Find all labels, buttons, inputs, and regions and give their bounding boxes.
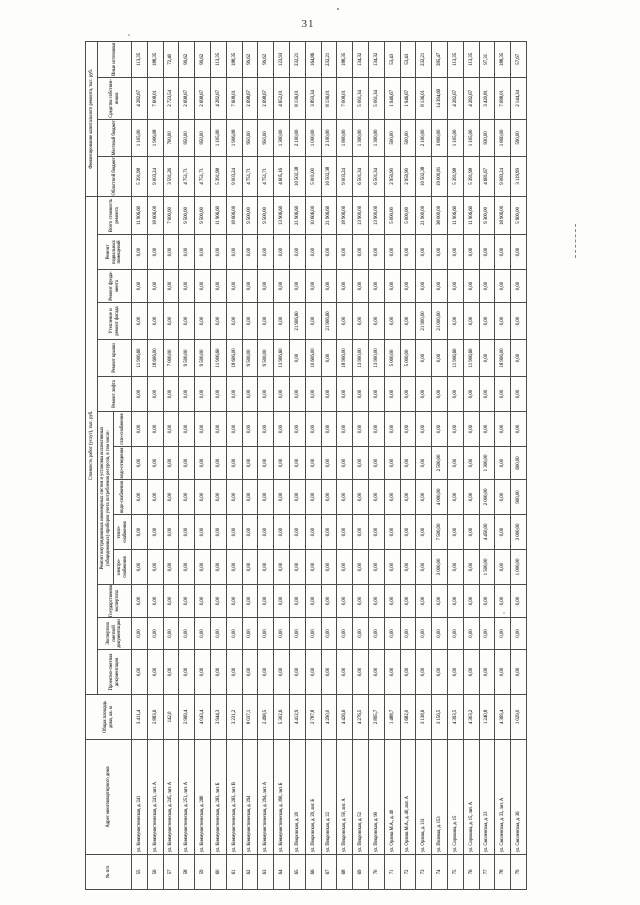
value-cell: 0,00 bbox=[242, 550, 258, 585]
value-cell: 0,00 bbox=[337, 480, 353, 515]
value-cell: 19 000,81 bbox=[432, 156, 448, 196]
rotated-table-area: № п/п Адрес многоквартирного дома Общая … bbox=[85, 40, 500, 890]
value-cell: 1 029,0 bbox=[511, 695, 527, 740]
value-cell: 0,00 bbox=[400, 515, 416, 550]
value-cell: 18 906,00 bbox=[337, 196, 353, 234]
value-cell: 0,00 bbox=[416, 235, 432, 270]
value-cell: 0,00 bbox=[210, 303, 226, 340]
value-cell: 0,00 bbox=[447, 377, 463, 412]
value-cell: 18 606,00 bbox=[226, 340, 242, 377]
value-cell: 0,00 bbox=[432, 270, 448, 303]
value-cell: 8 037,1 bbox=[242, 695, 258, 740]
value-cell: 0,00 bbox=[305, 377, 321, 412]
address-cell: ул. Покровская, д. 20, лит. Б bbox=[305, 740, 321, 855]
value-cell: 0,00 bbox=[447, 303, 463, 340]
value-cell: 4 369,4 bbox=[495, 695, 511, 740]
value-cell: 0,00 bbox=[305, 550, 321, 585]
col-header-state-expertise: Государственная экспертиза bbox=[98, 585, 132, 618]
value-cell: 1 240,8 bbox=[479, 695, 495, 740]
value-cell: 0,00 bbox=[447, 270, 463, 303]
value-cell: 0,00 bbox=[337, 515, 353, 550]
value-cell: 0,00 bbox=[305, 650, 321, 695]
value-cell: 0,00 bbox=[463, 377, 479, 412]
table-row: 79ул. Смоленская, д. 361 029,00,000,000,… bbox=[511, 41, 527, 889]
value-cell: 10 502,38 bbox=[321, 156, 337, 196]
value-cell: 134,32 bbox=[368, 41, 384, 77]
value-cell: 0,00 bbox=[416, 412, 432, 447]
value-cell: 21 000,00 bbox=[432, 303, 448, 340]
value-cell: 0,00 bbox=[289, 340, 305, 377]
value-cell: 1 300,00 bbox=[274, 119, 290, 156]
col-header-address: Адрес многоквартирного дома bbox=[86, 740, 132, 855]
value-cell: 0,00 bbox=[511, 650, 527, 695]
value-cell: 0,00 bbox=[147, 270, 163, 303]
value-cell: 0,00 bbox=[368, 235, 384, 270]
value-cell: 0,00 bbox=[258, 270, 274, 303]
scan-speck bbox=[337, 8, 339, 10]
value-cell: 0,00 bbox=[226, 447, 242, 480]
value-cell: 0,00 bbox=[226, 618, 242, 650]
value-cell: 1 300,00 bbox=[353, 119, 369, 156]
value-cell: 0,00 bbox=[195, 377, 211, 412]
col-header-num: № п/п bbox=[86, 855, 132, 890]
value-cell: 0,00 bbox=[242, 412, 258, 447]
value-cell: 3 893,34 bbox=[305, 77, 321, 119]
col-header-area: Общая площадь дома, кв. м bbox=[86, 695, 132, 740]
value-cell: 0,00 bbox=[463, 412, 479, 447]
value-cell: 11 906,60 bbox=[447, 196, 463, 234]
value-cell: 0,00 bbox=[289, 235, 305, 270]
value-cell: 0,00 bbox=[163, 235, 179, 270]
value-cell: 0,00 bbox=[321, 270, 337, 303]
value-cell: 0,00 bbox=[195, 235, 211, 270]
value-cell: 5 000,00 bbox=[400, 340, 416, 377]
col-header-other-sources: Иные источники bbox=[98, 41, 132, 77]
value-cell: 3 138,6 bbox=[416, 695, 432, 740]
address-cell: ул. Полевая, д. 153 bbox=[432, 740, 448, 855]
row-number-cell: 72 bbox=[400, 855, 416, 890]
address-cell: ул. Коммунистическая, д. 294 bbox=[242, 740, 258, 855]
value-cell: 0,00 bbox=[163, 303, 179, 340]
table-row: 67ул. Покровская, д. 224 290,00,000,000,… bbox=[321, 41, 337, 889]
value-cell: 1 488,7 bbox=[384, 695, 400, 740]
repair-table: № п/п Адрес многоквартирного дома Общая … bbox=[85, 41, 527, 890]
value-cell: 0,00 bbox=[242, 650, 258, 695]
value-cell: 0,00 bbox=[305, 235, 321, 270]
address-cell: ул. Коммунистическая, д. 241 bbox=[132, 740, 148, 855]
value-cell: 1 946,67 bbox=[384, 77, 400, 119]
value-cell: 0,00 bbox=[353, 618, 369, 650]
value-cell: 0,00 bbox=[368, 412, 384, 447]
value-cell: 0,00 bbox=[447, 480, 463, 515]
row-number-cell: 55 bbox=[132, 855, 148, 890]
value-cell: 11 906,60 bbox=[210, 196, 226, 234]
value-cell: 0,00 bbox=[210, 515, 226, 550]
value-cell: 0,00 bbox=[416, 480, 432, 515]
value-cell: 1 906,08 bbox=[226, 119, 242, 156]
value-cell: 0,00 bbox=[258, 447, 274, 480]
value-cell: 0,00 bbox=[226, 412, 242, 447]
table-row: 66ул. Покровская, д. 20, лит. Б2 787,80,… bbox=[305, 41, 321, 889]
value-cell: 0,00 bbox=[226, 303, 242, 340]
value-cell: 0,00 bbox=[337, 270, 353, 303]
row-number-cell: 57 bbox=[163, 855, 179, 890]
col-header-facade: Утепление и ремонт фасада bbox=[98, 303, 132, 340]
value-cell: 0,00 bbox=[226, 650, 242, 695]
value-cell: 1 800,00 bbox=[337, 119, 353, 156]
address-cell: ул. Коммунистическая, д. 251, лит. А bbox=[179, 740, 195, 855]
value-cell: 0,00 bbox=[479, 270, 495, 303]
value-cell: 0,00 bbox=[274, 412, 290, 447]
value-cell: 0,00 bbox=[337, 550, 353, 585]
value-cell: 0,00 bbox=[353, 585, 369, 618]
value-cell: 0,00 bbox=[258, 550, 274, 585]
value-cell: 0,00 bbox=[132, 585, 148, 618]
value-cell: 2 723,54 bbox=[163, 77, 179, 119]
value-cell: 5 900,00 bbox=[511, 196, 527, 234]
value-cell: 72,40 bbox=[163, 41, 179, 77]
value-cell: 0,00 bbox=[384, 303, 400, 340]
value-cell: 0,00 bbox=[321, 447, 337, 480]
value-cell: 0,00 bbox=[226, 515, 242, 550]
value-cell: 0,00 bbox=[400, 235, 416, 270]
value-cell: 0,00 bbox=[447, 447, 463, 480]
value-cell: 950,00 bbox=[195, 119, 211, 156]
value-cell: 0,00 bbox=[463, 270, 479, 303]
value-cell: 0,00 bbox=[321, 412, 337, 447]
value-cell: 3 119,99 bbox=[511, 156, 527, 196]
value-cell: 0,00 bbox=[242, 515, 258, 550]
value-cell: 0,00 bbox=[163, 412, 179, 447]
value-cell: 0,00 bbox=[368, 270, 384, 303]
value-cell: 0,00 bbox=[195, 585, 211, 618]
value-cell: 0,00 bbox=[353, 515, 369, 550]
value-cell: 0,00 bbox=[258, 235, 274, 270]
value-cell: 232,21 bbox=[289, 41, 305, 77]
value-cell: 0,00 bbox=[447, 412, 463, 447]
value-cell: 0,00 bbox=[353, 480, 369, 515]
value-cell: 0,00 bbox=[258, 650, 274, 695]
value-cell: 0,00 bbox=[400, 618, 416, 650]
value-cell: 2 100,00 bbox=[321, 119, 337, 156]
value-cell: 1 000,00 bbox=[511, 550, 527, 585]
value-cell: 0,00 bbox=[132, 235, 148, 270]
value-cell: 0,00 bbox=[368, 618, 384, 650]
value-cell: 18 606,00 bbox=[226, 196, 242, 234]
value-cell: 53,43 bbox=[400, 41, 416, 77]
address-cell: ул. Орлова, д. 131 bbox=[416, 740, 432, 855]
value-cell: 0,00 bbox=[511, 340, 527, 377]
value-cell: 0,00 bbox=[368, 480, 384, 515]
value-cell: 10 606,00 bbox=[305, 340, 321, 377]
value-cell: 0,00 bbox=[368, 303, 384, 340]
value-cell: 0,00 bbox=[463, 550, 479, 585]
value-cell: 0,00 bbox=[242, 235, 258, 270]
value-cell: 7 088,01 bbox=[495, 77, 511, 119]
col-header-total: Всего стоимость ремонта bbox=[98, 196, 132, 234]
value-cell: 9 083,24 bbox=[495, 156, 511, 196]
value-cell: 7 000,00 bbox=[163, 196, 179, 234]
value-cell: 0,00 bbox=[384, 550, 400, 585]
value-cell: 0,00 bbox=[384, 377, 400, 412]
value-cell: 0,00 bbox=[305, 412, 321, 447]
value-cell: 930,00 bbox=[479, 119, 495, 156]
table-row: 61ул. Коммунистическая, д. 283, лит. В3 … bbox=[226, 41, 242, 889]
value-cell: 2 144,34 bbox=[511, 77, 527, 119]
value-cell: 0,00 bbox=[226, 550, 242, 585]
value-cell: 4 412,9 bbox=[289, 695, 305, 740]
value-cell: 5 000,00 bbox=[384, 196, 400, 234]
value-cell: 0,00 bbox=[321, 550, 337, 585]
value-cell: 7 608,01 bbox=[226, 77, 242, 119]
value-cell: 13 906,60 bbox=[274, 196, 290, 234]
value-cell: 4 290,0 bbox=[321, 695, 337, 740]
row-number-cell: 66 bbox=[305, 855, 321, 890]
address-cell: ул. Орлова М.А., д. 40 bbox=[384, 740, 400, 855]
table-row: 74ул. Полевая, д. 1533 156,50,000,000,00… bbox=[432, 41, 448, 889]
value-cell: 0,00 bbox=[511, 270, 527, 303]
landscape-table-wrapper: № п/п Адрес многоквартирного дома Общая … bbox=[85, 40, 500, 890]
value-cell: 2 698,67 bbox=[195, 77, 211, 119]
value-cell: 9 500,00 bbox=[258, 196, 274, 234]
value-cell: 0,00 bbox=[479, 377, 495, 412]
value-cell: 0,00 bbox=[179, 618, 195, 650]
table-row: 68ул. Покровская, д. 50, лит. А4 426,60,… bbox=[337, 41, 353, 889]
value-cell: 0,00 bbox=[495, 447, 511, 480]
table-row: 62ул. Коммунистическая, д. 2948 037,10,0… bbox=[242, 41, 258, 889]
col-header-electricity: электро-снабжения bbox=[114, 550, 132, 585]
value-cell: 1 105,00 bbox=[132, 119, 148, 156]
value-cell: 0,00 bbox=[132, 515, 148, 550]
value-cell: 0,00 bbox=[479, 412, 495, 447]
value-cell: 11 906,60 bbox=[210, 340, 226, 377]
value-cell: 99,62 bbox=[258, 41, 274, 77]
value-cell: 0,00 bbox=[258, 480, 274, 515]
address-cell: ул. Коммунистическая, д. 283, лит. Б bbox=[210, 740, 226, 855]
address-cell: ул. Коммунистическая, д. 241, лит. А bbox=[147, 740, 163, 855]
address-cell: ул. Смоленская, д. 36 bbox=[511, 740, 527, 855]
value-cell: 21 906,60 bbox=[321, 303, 337, 340]
value-cell: 188,35 bbox=[337, 41, 353, 77]
value-cell: 7 000,00 bbox=[163, 340, 179, 377]
col-header-elevator: Ремонт лифта bbox=[98, 377, 132, 412]
value-cell: 0,00 bbox=[384, 447, 400, 480]
address-cell: ул. Покровская, д. 20 bbox=[289, 740, 305, 855]
value-cell: 5 061,34 bbox=[353, 77, 369, 119]
value-cell: 0,00 bbox=[195, 515, 211, 550]
row-number-cell: 71 bbox=[384, 855, 400, 890]
value-cell: 0,00 bbox=[226, 480, 242, 515]
value-cell: 0,00 bbox=[258, 303, 274, 340]
value-cell: 188,35 bbox=[226, 41, 242, 77]
value-cell: 5 391,98 bbox=[132, 156, 148, 196]
scan-artifact-dash bbox=[575, 224, 576, 258]
value-cell: 0,00 bbox=[289, 377, 305, 412]
value-cell: 97,31 bbox=[479, 41, 495, 77]
value-cell: 3 000,00 bbox=[511, 515, 527, 550]
value-cell: 2 950,90 bbox=[400, 156, 416, 196]
value-cell: 0,00 bbox=[274, 270, 290, 303]
value-cell: 0,00 bbox=[463, 585, 479, 618]
col-header-gas: газо-снабжения bbox=[114, 412, 132, 447]
value-cell: 0,00 bbox=[132, 480, 148, 515]
value-cell: 18 606,00 bbox=[147, 340, 163, 377]
value-cell: 0,00 bbox=[258, 515, 274, 550]
value-cell: 0,00 bbox=[400, 650, 416, 695]
value-cell: 13 900,00 bbox=[353, 196, 369, 234]
value-cell: 500,00 bbox=[384, 119, 400, 156]
value-cell: 2 498,5 bbox=[258, 695, 274, 740]
value-cell: 0,00 bbox=[210, 585, 226, 618]
value-cell: 1 105,00 bbox=[463, 119, 479, 156]
value-cell: 0,00 bbox=[432, 618, 448, 650]
value-cell: 950,00 bbox=[242, 119, 258, 156]
value-cell: 0,00 bbox=[179, 377, 195, 412]
value-cell: 0,00 bbox=[463, 650, 479, 695]
value-cell: 0,00 bbox=[447, 550, 463, 585]
value-cell: 0,00 bbox=[132, 270, 148, 303]
value-cell: 10 502,38 bbox=[416, 156, 432, 196]
value-cell: 0,00 bbox=[479, 650, 495, 695]
value-cell: 0,00 bbox=[274, 303, 290, 340]
value-cell: 0,00 bbox=[179, 480, 195, 515]
table-header: № п/п Адрес многоквартирного дома Общая … bbox=[86, 41, 132, 889]
value-cell: 0,00 bbox=[226, 585, 242, 618]
value-cell: 0,00 bbox=[258, 377, 274, 412]
value-cell: 950,00 bbox=[258, 119, 274, 156]
value-cell: 0,00 bbox=[163, 447, 179, 480]
row-number-cell: 67 bbox=[321, 855, 337, 890]
value-cell: 6 501,34 bbox=[368, 156, 384, 196]
value-cell: 0,00 bbox=[447, 650, 463, 695]
value-cell: 9 500,00 bbox=[242, 196, 258, 234]
value-cell: 0,00 bbox=[195, 480, 211, 515]
value-cell: 11 906,60 bbox=[132, 196, 148, 234]
value-cell: 2 698,67 bbox=[258, 77, 274, 119]
value-cell: 0,00 bbox=[179, 303, 195, 340]
value-cell: 0,00 bbox=[274, 585, 290, 618]
address-cell: ул. Покровская, д. 22 bbox=[321, 740, 337, 855]
value-cell: 0,00 bbox=[321, 377, 337, 412]
value-cell: 500,00 bbox=[400, 119, 416, 156]
value-cell: 3 944,3 bbox=[210, 695, 226, 740]
row-number-cell: 73 bbox=[416, 855, 432, 890]
value-cell: 5 391,98 bbox=[463, 156, 479, 196]
table-row: 77ул. Смоленская, д. 231 240,80,000,000,… bbox=[479, 41, 495, 889]
value-cell: 0,00 bbox=[195, 650, 211, 695]
value-cell: 0,00 bbox=[147, 585, 163, 618]
address-cell: ул. Смоленская, д. 32, лит. А bbox=[495, 740, 511, 855]
value-cell: 0,00 bbox=[384, 235, 400, 270]
value-cell: 5 302,6 bbox=[274, 695, 290, 740]
value-cell: 0,00 bbox=[195, 447, 211, 480]
page-number: 31 bbox=[288, 18, 328, 30]
address-cell: ул. Коммунистическая, д. 390, лит. Б bbox=[274, 740, 290, 855]
value-cell: 0,00 bbox=[226, 270, 242, 303]
value-cell: 188,35 bbox=[495, 41, 511, 77]
value-cell: 0,00 bbox=[495, 650, 511, 695]
value-cell: 0,00 bbox=[432, 650, 448, 695]
value-cell: 0,00 bbox=[321, 650, 337, 695]
row-number-cell: 78 bbox=[495, 855, 511, 890]
value-cell: 0,00 bbox=[289, 270, 305, 303]
value-cell: 0,00 bbox=[368, 650, 384, 695]
value-cell: 0,00 bbox=[274, 515, 290, 550]
scan-speck bbox=[128, 34, 130, 36]
table-row: 63ул. Коммунистическая, д. 294, лит. А2 … bbox=[258, 41, 274, 889]
value-cell: 0,00 bbox=[147, 618, 163, 650]
value-cell: 0,00 bbox=[179, 585, 195, 618]
value-cell: 13 900,00 bbox=[368, 340, 384, 377]
value-cell: 0,00 bbox=[416, 550, 432, 585]
value-cell: 0,00 bbox=[495, 618, 511, 650]
row-number-cell: 68 bbox=[337, 855, 353, 890]
value-cell: 0,00 bbox=[179, 550, 195, 585]
value-cell: 13 900,00 bbox=[353, 340, 369, 377]
value-cell: 0,00 bbox=[353, 412, 369, 447]
value-cell: 0,00 bbox=[274, 447, 290, 480]
value-cell: 0,00 bbox=[400, 303, 416, 340]
value-cell: 21 900,00 bbox=[416, 196, 432, 234]
value-cell: 2 100,00 bbox=[289, 119, 305, 156]
col-header-roof: Ремонт крыши bbox=[98, 340, 132, 377]
value-cell: 0,00 bbox=[163, 270, 179, 303]
value-cell: 0,00 bbox=[305, 480, 321, 515]
value-cell: 0,00 bbox=[132, 447, 148, 480]
value-cell: 0,00 bbox=[495, 270, 511, 303]
value-cell: 0,00 bbox=[353, 235, 369, 270]
value-cell: 0,00 bbox=[353, 303, 369, 340]
value-cell: 0,00 bbox=[147, 515, 163, 550]
value-cell: 188,35 bbox=[147, 41, 163, 77]
value-cell: 0,00 bbox=[274, 550, 290, 585]
value-cell: 0,00 bbox=[353, 377, 369, 412]
value-cell: 232,21 bbox=[321, 41, 337, 77]
value-cell: 0,00 bbox=[321, 618, 337, 650]
value-cell: 0,00 bbox=[147, 650, 163, 695]
value-cell: 0,00 bbox=[495, 480, 511, 515]
value-cell: 0,00 bbox=[179, 270, 195, 303]
value-cell: 1 300,00 bbox=[479, 447, 495, 480]
value-cell: 0,00 bbox=[432, 585, 448, 618]
value-cell: 0,00 bbox=[163, 618, 179, 650]
value-cell: 0,00 bbox=[479, 340, 495, 377]
value-cell: 395,47 bbox=[432, 41, 448, 77]
value-cell: 0,00 bbox=[353, 550, 369, 585]
value-cell: 4 282,67 bbox=[132, 77, 148, 119]
row-number-cell: 69 bbox=[353, 855, 369, 890]
value-cell: 0,00 bbox=[384, 650, 400, 695]
value-cell: 0,00 bbox=[289, 412, 305, 447]
value-cell: 0,00 bbox=[447, 618, 463, 650]
value-cell: 0,00 bbox=[337, 235, 353, 270]
value-cell: 8 136,01 bbox=[416, 77, 432, 119]
value-cell: 21 906,60 bbox=[321, 196, 337, 234]
value-cell: 4 450,00 bbox=[479, 515, 495, 550]
value-cell: 0,00 bbox=[479, 235, 495, 270]
group-header-systems: Ремонт внутридомовых инженерных систем и… bbox=[98, 412, 114, 585]
row-number-cell: 70 bbox=[368, 855, 384, 890]
col-header-owners-funds: Средства собствен- ников bbox=[98, 77, 132, 119]
value-cell: 0,00 bbox=[400, 480, 416, 515]
address-cell: ул. Смоленская, д. 23 bbox=[479, 740, 495, 855]
value-cell: 950,00 bbox=[179, 119, 195, 156]
address-cell: ул. Коммунистическая, д. 280 bbox=[195, 740, 211, 855]
repair-table-body: 55ул. Коммунистическая, д. 2413 411,40,0… bbox=[132, 41, 527, 889]
value-cell: 13 906,60 bbox=[274, 340, 290, 377]
value-cell: 0,00 bbox=[416, 650, 432, 695]
value-cell: 0,00 bbox=[242, 270, 258, 303]
